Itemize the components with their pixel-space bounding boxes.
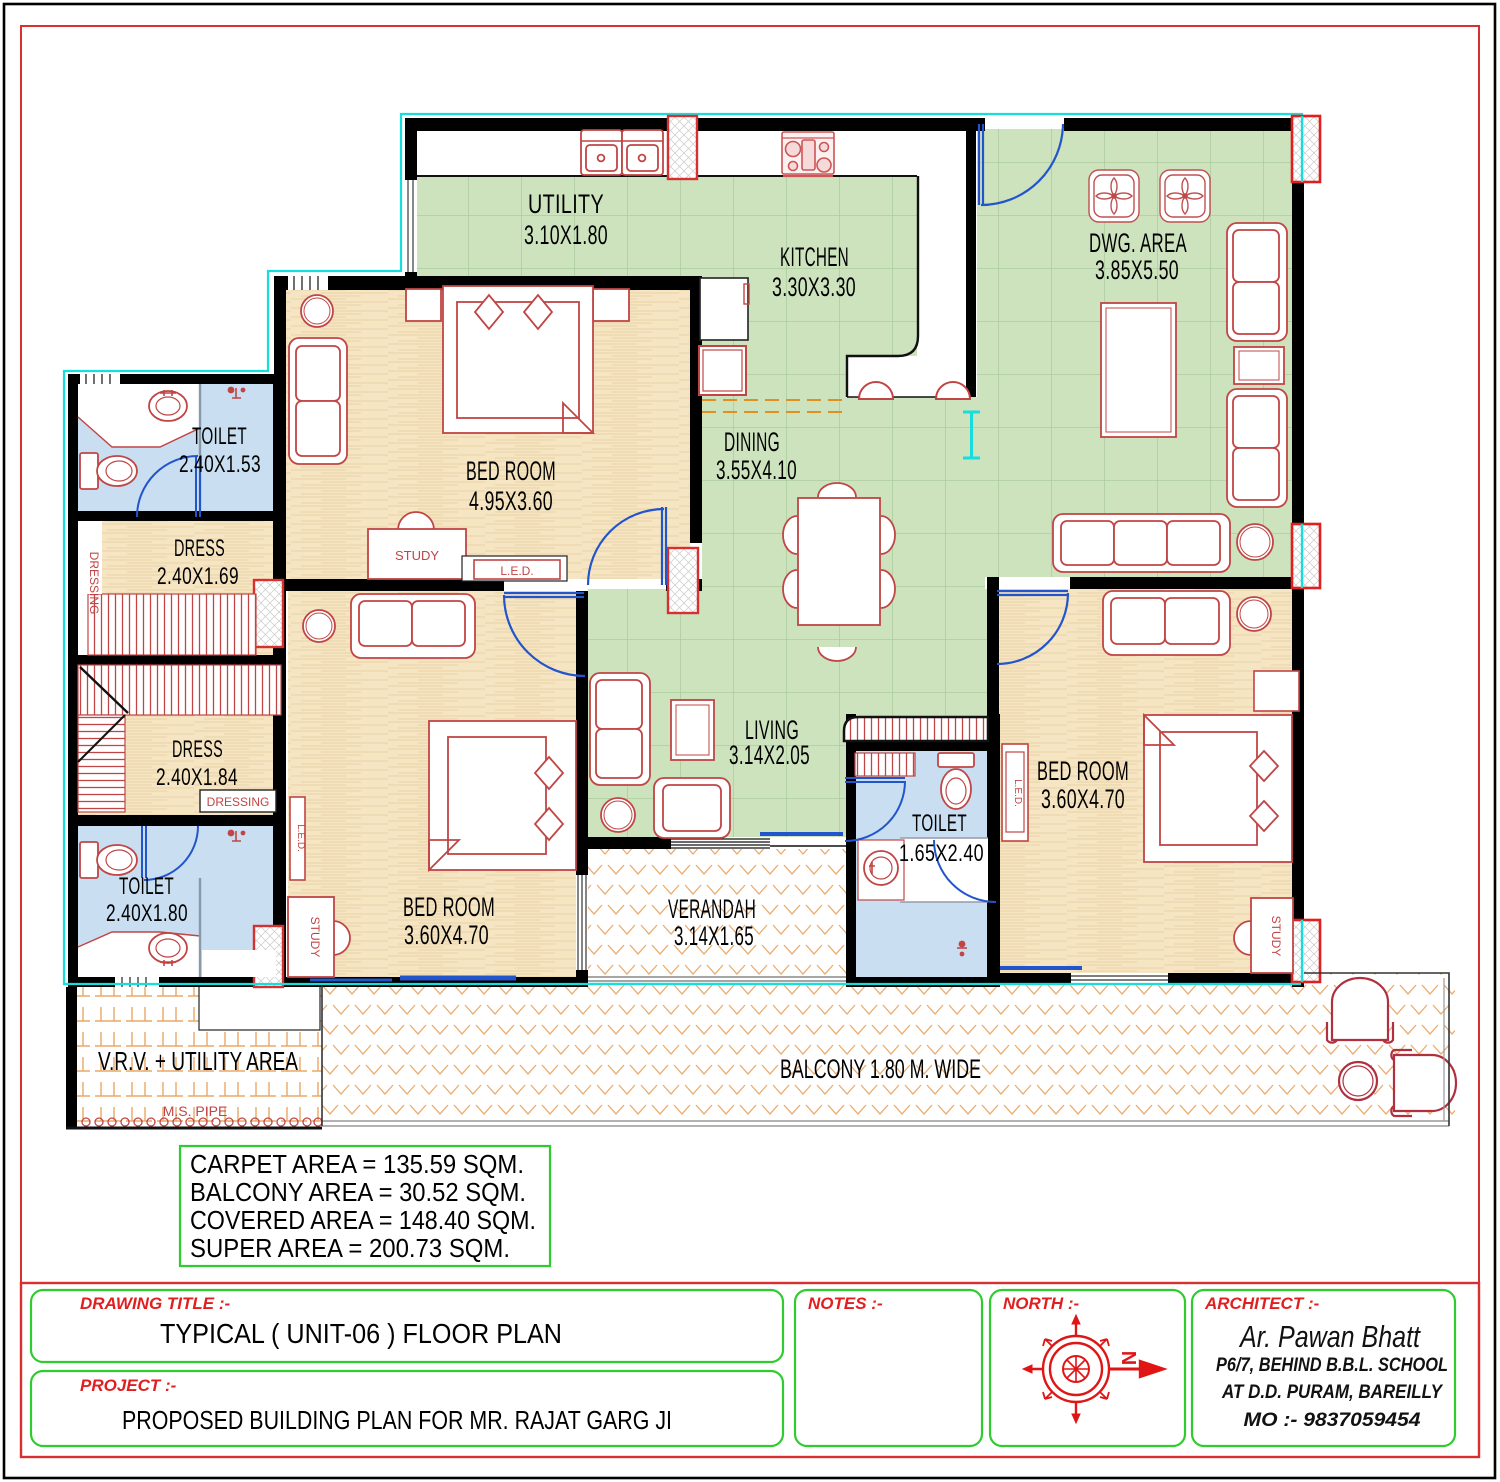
svg-text:3.14X2.05: 3.14X2.05 xyxy=(729,740,810,770)
svg-text:STUDY: STUDY xyxy=(395,548,439,563)
svg-text:L.E.D.: L.E.D. xyxy=(500,564,533,578)
svg-text:BALCONY AREA = 30.52 SQM.: BALCONY AREA = 30.52 SQM. xyxy=(190,1177,526,1207)
svg-text:L.E.D.: L.E.D. xyxy=(295,824,306,852)
svg-text:DRAWING TITLE :-: DRAWING TITLE :- xyxy=(80,1294,230,1313)
svg-text:3.85X5.50: 3.85X5.50 xyxy=(1095,255,1179,285)
svg-text:PROJECT :-: PROJECT :- xyxy=(80,1376,177,1395)
svg-text:3.55X4.10: 3.55X4.10 xyxy=(716,455,797,485)
svg-text:BED ROOM: BED ROOM xyxy=(403,892,495,922)
svg-text:VERANDAH: VERANDAH xyxy=(668,894,756,924)
svg-text:SUPER AREA = 200.73 SQM.: SUPER AREA = 200.73 SQM. xyxy=(190,1233,510,1263)
svg-text:3.60X4.70: 3.60X4.70 xyxy=(1041,784,1125,814)
svg-text:3.14X1.65: 3.14X1.65 xyxy=(674,921,754,951)
svg-text:STUDY: STUDY xyxy=(1269,916,1283,957)
svg-text:DRESS: DRESS xyxy=(174,535,225,562)
svg-text:DRESS: DRESS xyxy=(172,736,223,763)
svg-text:Ar. Pawan Bhatt: Ar. Pawan Bhatt xyxy=(1238,1319,1421,1354)
svg-text:P6/7, BEHIND B.B.L. SCHOOL: P6/7, BEHIND B.B.L. SCHOOL xyxy=(1216,1355,1448,1376)
svg-text:L.E.D.: L.E.D. xyxy=(1012,779,1023,807)
svg-text:NOTES :-: NOTES :- xyxy=(808,1294,883,1313)
svg-text:KITCHEN: KITCHEN xyxy=(780,242,849,272)
svg-text:ARCHITECT :-: ARCHITECT :- xyxy=(1204,1294,1320,1313)
svg-text:AT D.D. PURAM, BAREILLY: AT D.D. PURAM, BAREILLY xyxy=(1221,1382,1444,1403)
svg-text:TOILET: TOILET xyxy=(192,423,247,450)
svg-text:DWG. AREA: DWG. AREA xyxy=(1089,228,1187,258)
svg-text:CARPET AREA = 135.59 SQM.: CARPET AREA = 135.59 SQM. xyxy=(190,1149,524,1179)
svg-text:2.40X1.80: 2.40X1.80 xyxy=(106,900,188,927)
svg-text:V.R.V. + UTILITY AREA: V.R.V. + UTILITY AREA xyxy=(98,1046,298,1076)
svg-text:N: N xyxy=(1117,1351,1139,1365)
svg-text:COVERED AREA = 148.40 SQM.: COVERED AREA = 148.40 SQM. xyxy=(190,1205,536,1235)
svg-text:TYPICAL ( UNIT-06 ) FLOOR: TYPICAL ( UNIT-06 ) FLOOR PLAN xyxy=(160,1318,562,1349)
svg-text:2.40X1.69: 2.40X1.69 xyxy=(157,563,239,590)
svg-text:4.95X3.60: 4.95X3.60 xyxy=(469,486,553,516)
svg-text:BED ROOM: BED ROOM xyxy=(466,456,556,486)
svg-text:M.S. PIPE: M.S. PIPE xyxy=(163,1103,228,1119)
svg-text:2.40X1.84: 2.40X1.84 xyxy=(156,764,238,791)
svg-text:3.30X3.30: 3.30X3.30 xyxy=(772,272,856,302)
svg-text:1.65X2.40: 1.65X2.40 xyxy=(899,840,984,867)
svg-text:TOILET: TOILET xyxy=(912,810,967,837)
svg-text:UTILITY: UTILITY xyxy=(528,189,604,219)
svg-text:PROPOSED BUILDING PLAN FOR: PROPOSED BUILDING PLAN FOR MR. RAJAT GAR… xyxy=(122,1405,672,1435)
svg-text:BALCONY 1.80 M. WIDE: BALCONY 1.80 M. WIDE xyxy=(780,1054,981,1084)
svg-text:MO :- 9837059454: MO :- 9837059454 xyxy=(1244,1410,1421,1431)
svg-text:2.40X1.53: 2.40X1.53 xyxy=(179,451,261,478)
svg-text:3.60X4.70: 3.60X4.70 xyxy=(404,920,489,950)
svg-text:DRESSING: DRESSING xyxy=(87,552,101,615)
svg-text:NORTH :-: NORTH :- xyxy=(1003,1294,1080,1313)
svg-text:DINING: DINING xyxy=(724,427,780,457)
svg-text:TOILET: TOILET xyxy=(119,873,174,900)
svg-text:3.10X1.80: 3.10X1.80 xyxy=(524,220,608,250)
svg-text:STUDY: STUDY xyxy=(308,917,322,958)
svg-text:DRESSING: DRESSING xyxy=(207,795,270,809)
svg-text:BED ROOM: BED ROOM xyxy=(1037,756,1129,786)
